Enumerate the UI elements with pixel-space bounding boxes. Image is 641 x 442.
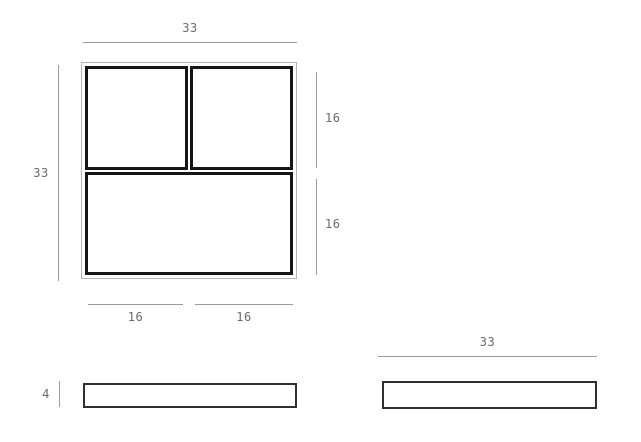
front-view-bottom-row: [85, 172, 293, 275]
dim-line-panel-width: [378, 356, 597, 357]
dim-line-overall-width: [83, 42, 297, 43]
technical-drawing-canvas: 33 33 16 16 16 16 4 33: [0, 0, 641, 442]
dim-line-top-row-height: [316, 72, 317, 168]
compartment-bottom: [85, 172, 293, 275]
dim-label-right-column-width: 16: [195, 310, 293, 324]
dim-line-right-column-width: [195, 304, 293, 305]
dim-line-left-column-width: [88, 304, 183, 305]
dim-label-overall-height: 33: [30, 166, 52, 180]
dim-label-panel-thickness: 4: [38, 387, 54, 401]
panel-side-view-rect: [83, 383, 297, 408]
dim-label-top-row-height: 16: [325, 111, 343, 125]
dim-label-left-column-width: 16: [88, 310, 183, 324]
dim-line-overall-height: [58, 65, 59, 281]
dim-label-bottom-row-height: 16: [325, 217, 343, 231]
dim-line-bottom-row-height: [316, 179, 317, 275]
compartment-top-left: [85, 66, 188, 170]
dim-label-overall-width: 33: [83, 21, 297, 35]
panel-top-view-rect: [382, 381, 597, 409]
front-view-top-row: [85, 66, 293, 170]
dim-line-panel-thickness: [59, 381, 60, 407]
front-view-unit-frame: [81, 62, 297, 279]
compartment-top-right: [190, 66, 293, 170]
dim-label-panel-width: 33: [378, 335, 597, 349]
